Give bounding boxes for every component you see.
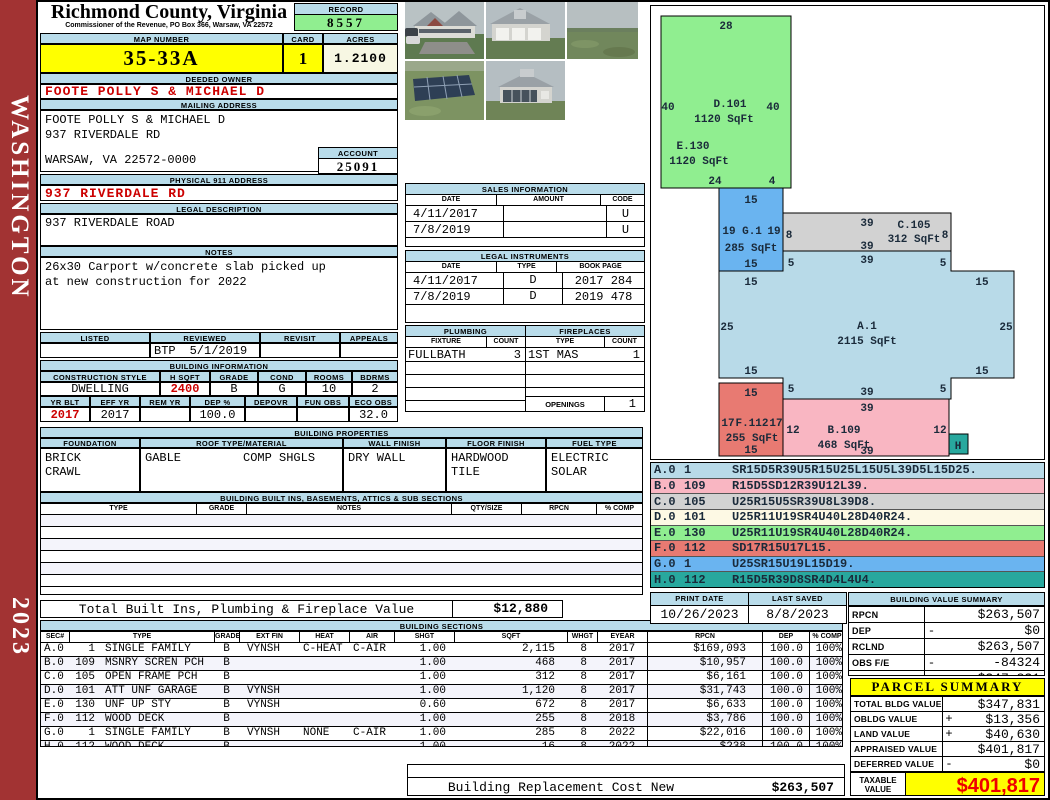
shgt-col: SHGT	[394, 632, 454, 642]
section-heat: C-HEAT	[299, 643, 349, 656]
section-sqft: 1,120	[454, 685, 567, 698]
built-ins-header: BUILDING BUILT INS, BASEMENTS, ATTICS & …	[40, 492, 643, 503]
section-whgt: 8	[567, 657, 597, 670]
sales-code-col: CODE	[600, 195, 644, 205]
section-comp: 100%	[809, 713, 843, 726]
taxable-value: $401,817	[906, 773, 1044, 796]
yrblt-label: YR BLT	[40, 396, 90, 407]
instrument-type: D	[503, 289, 563, 304]
legend-vector-path: U25SR15U19L15D19.	[732, 557, 1044, 571]
sales-date-col: DATE	[406, 195, 496, 205]
svg-text:19: 19	[722, 226, 735, 238]
section-sqft: 468	[454, 657, 567, 670]
section-type: SINGLE FAMILY	[99, 643, 214, 656]
section-heat	[299, 741, 349, 747]
section-id: E.0	[41, 699, 69, 712]
section-sqft: 2,115	[454, 643, 567, 656]
svg-text:15: 15	[975, 277, 989, 289]
section-eyear: 2017	[597, 657, 647, 670]
svg-text:G.1: G.1	[742, 226, 762, 238]
extfin-col: EXT FIN	[239, 632, 299, 642]
builtin-empty-row	[41, 563, 642, 575]
svg-text:19: 19	[767, 226, 780, 238]
section-grade: B	[214, 671, 239, 684]
wall-finish-label: WALL FINISH	[343, 438, 446, 448]
whgt-col: WHGT	[567, 632, 597, 642]
section-heat	[299, 657, 349, 670]
sale-code: U	[607, 207, 644, 221]
section-whgt: 8	[567, 727, 597, 740]
building-section-row: C.0 105 OPEN FRAME PCH B 1.00 312 8 2017…	[41, 671, 842, 685]
legend-section-code: 109	[684, 479, 732, 493]
acres-value: 1.2100	[323, 44, 398, 73]
notes-line-1: 26x30 Carport w/concrete slab picked up	[41, 258, 397, 275]
parcel-row-value: $401,817	[955, 742, 1044, 757]
builtin-comp-col: % COMP	[596, 504, 642, 514]
floor-finish-line-2: TILE	[447, 465, 545, 479]
bvs-row-sign: -	[925, 624, 938, 638]
legal-instruments-header: LEGAL INSTRUMENTS	[406, 251, 644, 262]
plumbing-empty-row	[406, 388, 525, 401]
foundation-line-2: CRAWL	[41, 465, 139, 479]
card-value: 1	[283, 44, 323, 73]
deeded-owner-label: DEEDED OWNER	[40, 73, 398, 84]
fixture-count: 3	[488, 348, 525, 362]
fireplace-count: 1	[606, 348, 644, 362]
legal-description-label: LEGAL DESCRIPTION	[40, 203, 398, 214]
physical-address-value: 937 RIVERDALE RD	[40, 185, 398, 201]
section-air: C-AIR	[349, 643, 394, 656]
svg-text:2115 SqFt: 2115 SqFt	[837, 336, 896, 348]
section-air	[349, 685, 394, 698]
bvs-row: LCF 100% $347,831	[849, 670, 1044, 676]
section-dep: 100.0	[762, 713, 809, 726]
section-air	[349, 699, 394, 712]
section-id: G.0	[41, 727, 69, 740]
section-air	[349, 741, 394, 747]
map-number-label: MAP NUMBER	[40, 33, 283, 44]
svg-text:28: 28	[719, 21, 733, 33]
section-comp: 100%	[809, 727, 843, 740]
bvs-row-value: $347,831	[938, 671, 1044, 676]
legend-vector-path: SR15D5R39U5R15U25L15U5L39D5L15D25.	[732, 463, 1044, 477]
svg-text:5: 5	[788, 258, 795, 270]
mailing-address-label: MAILING ADDRESS	[40, 99, 398, 110]
instrument-date-col: DATE	[406, 262, 496, 272]
dep-col: DEP	[762, 632, 809, 642]
sales-row: 7/8/2019 U	[406, 222, 644, 238]
section-ext-fin	[239, 671, 299, 684]
floor-finish-line-1: HARDWOOD	[447, 449, 545, 465]
section-type-code: 109	[69, 657, 99, 670]
svg-text:17: 17	[769, 418, 782, 430]
map-number-value: 35-33A	[40, 44, 283, 73]
bvs-row-label: DEP	[852, 626, 871, 636]
foundation-label: FOUNDATION	[40, 438, 140, 448]
section-ext-fin: VYNSH	[239, 699, 299, 712]
section-shgt: 1.00	[394, 657, 454, 670]
section-ext-fin	[239, 713, 299, 726]
appeals-value	[340, 343, 398, 358]
legend-section-code: 101	[684, 510, 732, 524]
sales-information-panel: SALES INFORMATION DATE AMOUNT CODE 4/11/…	[405, 183, 645, 247]
legend-vector-path: R15D5SD12R39U12L39.	[732, 479, 1044, 493]
sketch-canvas: 28 40 D.101 40 1120 SqFt E.130 1120 SqFt…	[651, 6, 1044, 459]
builtin-qty-col: QTY/SIZE	[451, 504, 521, 514]
revisit-label: REVISIT	[260, 332, 340, 343]
bvs-row-label-cell: RCLND	[849, 639, 925, 654]
legend-section-id: A.0	[651, 463, 684, 477]
legend-section-id: B.0	[651, 479, 684, 493]
replacement-cost-box: Building Replacement Cost New $263,507	[407, 764, 845, 796]
wall-finish-value: DRY WALL	[343, 448, 446, 492]
section-sqft: 285	[454, 727, 567, 740]
legend-section-code: 112	[684, 541, 732, 555]
notes-box: 26x30 Carport w/concrete slab picked up …	[40, 257, 398, 330]
record-label: RECORD	[295, 4, 397, 15]
section-rpcn: $3,786	[647, 713, 762, 726]
parcel-rows: TOTAL BLDG VALUE $347,831 OBLDG VALUE + …	[851, 696, 1044, 771]
built-ins-total-label: Total Built Ins, Plumbing & Fireplace Va…	[41, 602, 452, 617]
building-section-row: G.0 1 SINGLE FAMILY B VYNSH NONE C-AIR 1…	[41, 727, 842, 741]
photo-solar-panels[interactable]	[405, 61, 484, 120]
section-grade: B	[214, 699, 239, 712]
section-heat	[299, 685, 349, 698]
funobs-label: FUN OBS	[297, 396, 349, 407]
cond-value: G	[258, 382, 306, 396]
svg-text:15: 15	[744, 366, 758, 378]
bvs-row: DEP - $0	[849, 622, 1044, 638]
section-id: B.0	[41, 657, 69, 670]
builtin-empty-row	[41, 575, 642, 587]
parcel-row-label: DEFERRED VALUE	[851, 757, 943, 771]
section-rpcn: $169,093	[647, 643, 762, 656]
acres-label: ACRES	[323, 33, 398, 44]
builtin-empty-row	[41, 587, 642, 595]
section-comp: 100%	[809, 699, 843, 712]
section-comp: 100%	[809, 657, 843, 670]
construction-style-value: DWELLING	[40, 382, 160, 396]
section-type-code: 112	[69, 713, 99, 726]
reviewed-date: 5/1/2019	[176, 344, 248, 358]
section-heat	[299, 671, 349, 684]
section-whgt: 8	[567, 643, 597, 656]
fixture-col: FIXTURE	[406, 337, 486, 347]
grade-col: GRADE	[214, 632, 239, 642]
section-eyear: 2017	[597, 643, 647, 656]
builtin-type-col: TYPE	[41, 504, 196, 514]
revisit-value	[260, 343, 340, 358]
section-comp: 100%	[809, 741, 843, 747]
bvs-row-label: LCF	[852, 674, 870, 677]
taxable-label: TAXABLE VALUE	[851, 773, 906, 796]
section-ext-fin: VYNSH	[239, 727, 299, 740]
built-ins-total-value: $12,880	[452, 601, 562, 617]
legend-row: F.0 112 SD17R15U17L15.	[651, 540, 1044, 556]
parcel-row: LAND VALUE + $40,630	[851, 726, 1044, 741]
svg-text:17: 17	[721, 418, 734, 430]
plumbing-header: PLUMBING	[406, 326, 525, 337]
section-eyear: 2018	[597, 713, 647, 726]
section-shgt: 1.00	[394, 671, 454, 684]
legend-section-id: C.0	[651, 495, 684, 509]
section-eyear: 2022	[597, 727, 647, 740]
instrument-type: D	[503, 273, 563, 288]
svg-text:312 SqFt: 312 SqFt	[888, 234, 941, 246]
legal-instruments-panel: LEGAL INSTRUMENTS DATE TYPE BOOK PAGE 4/…	[405, 250, 645, 323]
sale-amount	[503, 222, 607, 237]
instrument-book-page: 2017 284	[563, 274, 644, 288]
bvs-row-value: $263,507	[938, 607, 1044, 622]
print-date-value: 10/26/2023	[651, 606, 749, 624]
building-sketch: 28 40 D.101 40 1120 SqFt E.130 1120 SqFt…	[650, 5, 1045, 460]
building-section-row: A.0 1 SINGLE FAMILY B VYNSH C-HEAT C-AIR…	[41, 643, 842, 657]
last-saved-label: LAST SAVED	[749, 593, 846, 605]
svg-text:1120 SqFt: 1120 SqFt	[669, 156, 728, 168]
office-subtitle: Commissioner of the Revenue, PO Box 366,…	[40, 22, 298, 32]
hsqft-value: 2400	[160, 382, 210, 396]
section-whgt: 8	[567, 685, 597, 698]
parcel-row: DEFERRED VALUE - $0	[851, 756, 1044, 771]
section-heat	[299, 713, 349, 726]
section-shgt: 0.60	[394, 699, 454, 712]
svg-text:15: 15	[744, 445, 758, 457]
legend-row: D.0 101 U25R11U19SR4U40L28D40R24.	[651, 509, 1044, 525]
building-section-row: B.0 109 MSNRY SCREN PCH B 1.00 468 8 201…	[41, 657, 842, 671]
depovr-label: DEPOVR	[245, 396, 297, 407]
legend-row: B.0 109 R15D5SD12R39U12L39.	[651, 478, 1044, 494]
bvs-row-sign: -	[925, 656, 938, 670]
section-air: C-AIR	[349, 727, 394, 740]
reviewed-label: REVIEWED	[150, 332, 260, 343]
section-heat	[299, 699, 349, 712]
listed-value	[40, 343, 150, 358]
sales-column-headers: DATE AMOUNT CODE	[406, 195, 644, 206]
print-info-panel: PRINT DATE LAST SAVED 10/26/2023 8/8/202…	[650, 592, 847, 624]
legend-section-code: 1	[684, 557, 732, 571]
fireplace-empty-row	[526, 362, 644, 375]
section-id: F.0	[41, 713, 69, 726]
legend-section-code: 130	[684, 526, 732, 540]
section-type-code: 112	[69, 741, 99, 747]
instrument-date: 7/8/2019	[406, 290, 503, 304]
plumbing-row: FULLBATH 3	[406, 348, 525, 362]
instrument-type-col: TYPE	[496, 262, 556, 272]
rpcn-col: RPCN	[647, 632, 762, 642]
record-box: RECORD 8557	[294, 3, 398, 31]
instruments-column-headers: DATE TYPE BOOK PAGE	[406, 262, 644, 273]
parcel-row-value: $0	[955, 757, 1044, 772]
section-dep: 100.0	[762, 643, 809, 656]
fuel-type-value: ELECTRIC SOLAR	[546, 448, 643, 492]
section-whgt: 8	[567, 699, 597, 712]
section-type: WOOD DECK	[99, 713, 214, 726]
page-title: Richmond County, Virginia	[44, 2, 294, 22]
reviewed-value: BTP 5/1/2019	[150, 343, 260, 358]
sqft-col: SQFT	[454, 632, 567, 642]
construction-style-label: CONSTRUCTION STYLE	[40, 371, 160, 382]
photo-rear-exterior[interactable]	[486, 61, 565, 120]
section-grade: B	[214, 727, 239, 740]
instrument-date: 4/11/2017	[406, 274, 503, 288]
section-sqft: 672	[454, 699, 567, 712]
legend-row: E.0 130 U25R11U19SR4U40L28D40R24.	[651, 525, 1044, 541]
legend-section-id: H.0	[651, 573, 684, 587]
section-eyear: 2017	[597, 685, 647, 698]
section-heat: NONE	[299, 727, 349, 740]
photo-front-exterior[interactable]	[405, 2, 484, 59]
bvs-row: RPCN $263,507	[849, 606, 1044, 622]
physical-address-label: PHYSICAL 911 ADDRESS	[40, 174, 398, 185]
instrument-rows: 4/11/2017 D 2017 284 7/8/2019 D 2019 478	[406, 273, 644, 305]
builtin-grade-col: GRADE	[196, 504, 246, 514]
section-dep: 100.0	[762, 671, 809, 684]
fixture-count-col: COUNT	[486, 337, 525, 347]
bvs-row-label-cell: LCF 100%	[849, 671, 925, 676]
svg-text:D.101: D.101	[713, 99, 746, 111]
account-box: ACCOUNT 25091	[318, 147, 398, 174]
section-dep: 100.0	[762, 685, 809, 698]
section-shgt: 1.00	[394, 741, 454, 747]
section-comp: 100%	[809, 685, 843, 698]
dep-label: DEP %	[190, 396, 245, 407]
builtin-rpcn-col: RPCN	[521, 504, 596, 514]
air-col: AIR	[349, 632, 394, 642]
plumbing-column-headers: FIXTURE COUNT	[406, 337, 525, 348]
section-sqft: 312	[454, 671, 567, 684]
reviewer-initials: BTP	[151, 344, 176, 358]
svg-text:E.130: E.130	[676, 141, 709, 153]
parcel-row-value: $40,630	[955, 727, 1044, 742]
remyr-value	[140, 407, 190, 422]
last-saved-value: 8/8/2023	[749, 606, 846, 624]
svg-text:H: H	[955, 441, 962, 453]
grade-label: GRADE	[210, 371, 258, 382]
section-rpcn: $31,743	[647, 685, 762, 698]
fireplaces-header: FIREPLACES	[526, 326, 644, 337]
replacement-cost-label: Building Replacement Cost New	[408, 780, 714, 795]
svg-text:A.1: A.1	[857, 321, 877, 333]
fireplace-type-col: TYPE	[526, 337, 604, 347]
photo-garage-exterior[interactable]	[486, 2, 565, 59]
section-id: D.0	[41, 685, 69, 698]
parcel-row-value: $13,356	[955, 712, 1044, 727]
legend-row: C.0 105 U25R15U5SR39U8L39D8.	[651, 493, 1044, 509]
appeals-label: APPEALS	[340, 332, 398, 343]
parcel-summary: PARCEL SUMMARY TOTAL BLDG VALUE $347,831…	[850, 678, 1045, 796]
section-type: UNF UP STY	[99, 699, 214, 712]
yrblt-value: 2017	[40, 407, 90, 422]
parcel-row-label: APPRAISED VALUE	[851, 742, 943, 756]
svg-text:15: 15	[744, 277, 758, 289]
fireplaces-half: FIREPLACES TYPE COUNT 1ST MAS 1 OPENINGS…	[526, 326, 644, 411]
section-grade: B	[214, 741, 239, 747]
section-whgt: 8	[567, 741, 597, 747]
legend-vector-path: U25R15U5SR39U8L39D8.	[732, 495, 1044, 509]
photo-field[interactable]	[567, 2, 638, 59]
svg-text:4: 4	[769, 176, 776, 188]
instrument-row: 7/8/2019 D 2019 478	[406, 289, 644, 305]
bvs-row-value: $263,507	[938, 639, 1044, 654]
floor-finish-value: HARDWOOD TILE	[446, 448, 546, 492]
svg-text:12: 12	[933, 425, 946, 437]
section-type-code: 1	[69, 643, 99, 656]
bvs-row-label: RCLND	[852, 642, 885, 652]
bdrms-value: 2	[352, 382, 398, 396]
replacement-cost-value: $263,507	[714, 780, 844, 795]
bvs-row-value: $0	[938, 623, 1044, 638]
sales-information-header: SALES INFORMATION	[406, 184, 644, 195]
fireplace-row: 1ST MAS 1	[526, 348, 644, 362]
parcel-row-sign: +	[943, 712, 955, 726]
parcel-row-label: LAND VALUE	[851, 727, 943, 741]
bvs-row: RCLND $263,507	[849, 638, 1044, 654]
section-ext-fin	[239, 657, 299, 670]
fireplace-type: 1ST MAS	[526, 348, 606, 362]
bvs-row-label: RPCN	[852, 610, 878, 620]
building-value-summary-header: BUILDING VALUE SUMMARY	[849, 593, 1044, 606]
print-date-label: PRINT DATE	[651, 593, 749, 605]
svg-text:F.112: F.112	[735, 418, 768, 430]
svg-text:255 SqFt: 255 SqFt	[726, 433, 779, 445]
section-rpcn: $6,633	[647, 699, 762, 712]
section-shgt: 1.00	[394, 727, 454, 740]
section-shgt: 1.00	[394, 643, 454, 656]
sale-date: 4/11/2017	[406, 207, 503, 221]
svg-text:39: 39	[860, 255, 873, 267]
mailing-line-2: 937 RIVERDALE RD	[45, 128, 160, 142]
floor-finish-label: FLOOR FINISH	[446, 438, 546, 448]
section-type: WOOD DECK	[99, 741, 214, 747]
section-sqft: 16	[454, 741, 567, 747]
remyr-label: REM YR	[140, 396, 190, 407]
section-ext-fin	[239, 741, 299, 747]
svg-text:39: 39	[860, 241, 873, 253]
building-information-header: BUILDING INFORMATION	[40, 360, 398, 371]
svg-text:25: 25	[720, 322, 734, 334]
svg-text:15: 15	[744, 195, 758, 207]
parcel-row-label: TOTAL BLDG VALUE	[851, 697, 943, 711]
foundation-line-1: BRICK	[41, 449, 139, 465]
svg-text:1120 SqFt: 1120 SqFt	[694, 114, 753, 126]
listed-label: LISTED	[40, 332, 150, 343]
ecoobs-value: 32.0	[349, 407, 398, 422]
section-eyear: 2017	[597, 671, 647, 684]
svg-text:15: 15	[975, 366, 989, 378]
instrument-book-page: 2019 478	[563, 290, 644, 304]
svg-text:15: 15	[744, 259, 758, 271]
svg-text:24: 24	[708, 176, 722, 188]
bvs-row-pct: 100%	[897, 674, 921, 677]
fuel-type-label: FUEL TYPE	[546, 438, 643, 448]
builtin-empty-row	[41, 527, 642, 539]
roof-material: COMP SHGLS	[243, 451, 315, 465]
heat-col: HEAT	[299, 632, 349, 642]
section-eyear: 2022	[597, 741, 647, 747]
legend-row: G.0 1 U25SR15U19L15D19.	[651, 556, 1044, 572]
section-dep: 100.0	[762, 741, 809, 747]
svg-text:5: 5	[788, 384, 795, 396]
sales-row: 4/11/2017 U	[406, 206, 644, 222]
sections-column-headers: SEC# TYPE GRADE EXT FIN HEAT AIR SHGT SQ…	[41, 632, 842, 643]
section-type: SINGLE FAMILY	[99, 727, 214, 740]
bvs-rows: RPCN $263,507 DEP - $0 RCLND	[849, 606, 1044, 676]
grade-value: B	[210, 382, 258, 396]
notes-label: NOTES	[40, 246, 398, 257]
section-eyear: 2017	[597, 699, 647, 712]
section-dep: 100.0	[762, 727, 809, 740]
svg-text:C.105: C.105	[897, 220, 930, 232]
